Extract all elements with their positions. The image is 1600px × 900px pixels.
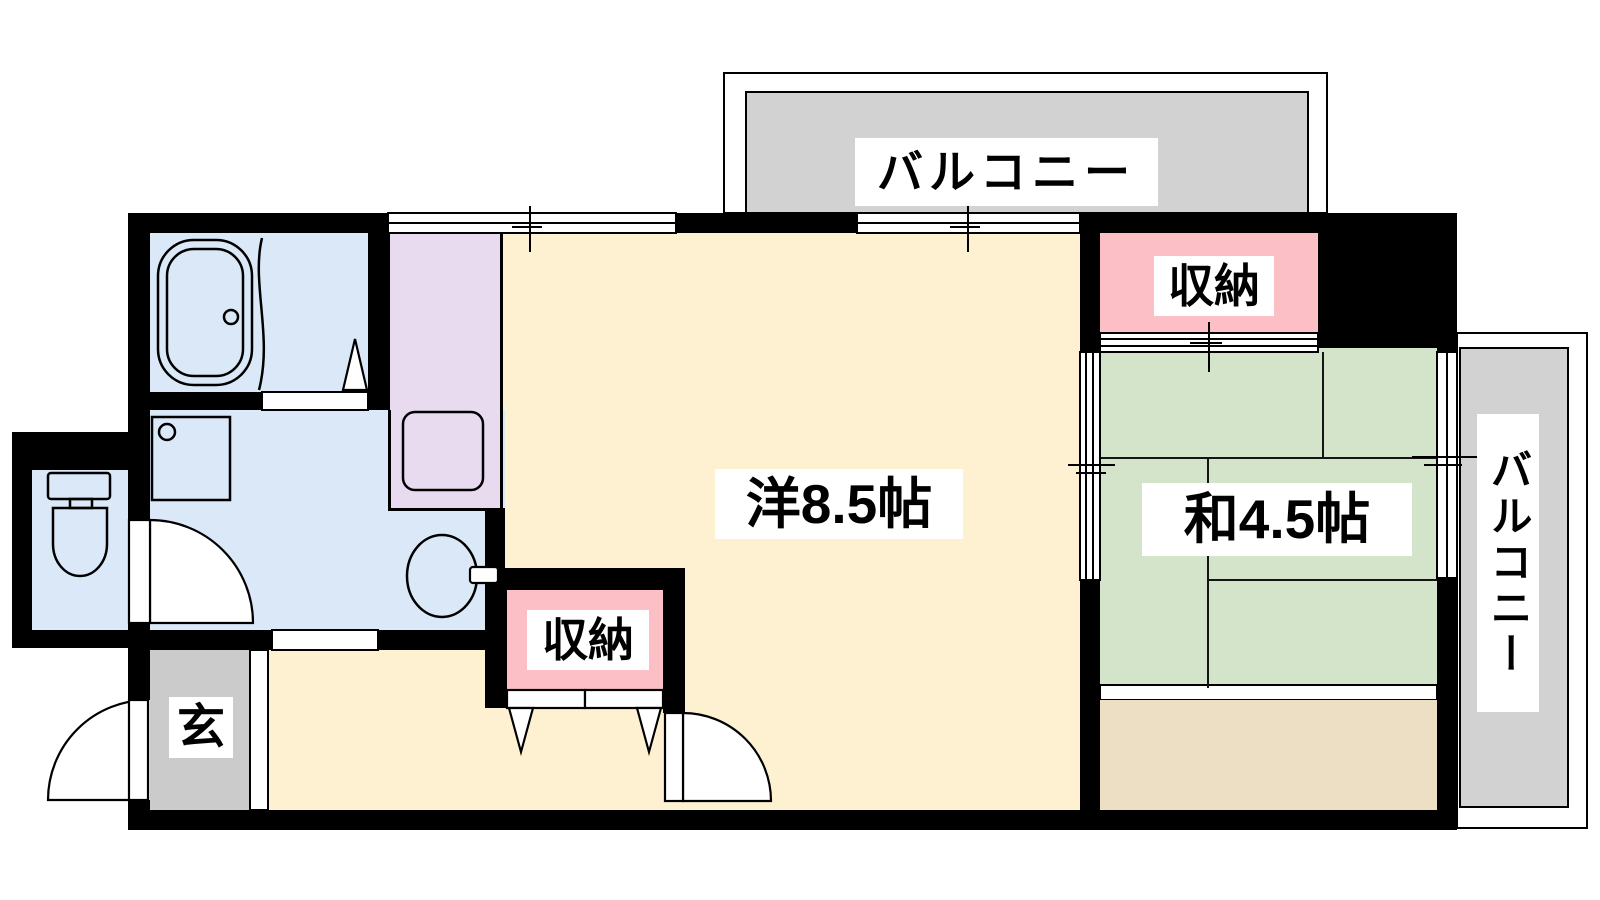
wall-closet-top [485,568,685,590]
closet-japanese-label: 収納 [1154,256,1274,316]
bathroom-door-opening [262,392,368,410]
balcony-top-label: バルコニー [855,138,1158,206]
wall-bottom [128,810,1457,830]
entrance-label: 玄 [169,697,233,758]
balcony-right-label: バルコニー [1477,414,1539,712]
western-room-label: 洋8.5帖 [715,469,963,539]
wall-corner-block-ne [1318,213,1457,348]
wall-bath-right [368,213,390,410]
wall-closet-right [663,590,685,713]
wall-top [128,213,1457,233]
wall-kitchen-right-line [500,233,503,510]
wall-closet-left [485,590,507,708]
wall-kitchen-left-line [388,410,391,510]
washroom-opening [272,630,378,650]
toilet-door-leaf [129,520,150,623]
wall-divider-top [1080,213,1100,352]
closet-main-bifold-left [507,690,585,708]
tatami-edge-strip [1100,685,1437,700]
wood-floor-strip [1100,700,1437,810]
wall-divider-bottom [1080,580,1100,830]
closet-main-bifold-right [585,690,663,708]
hall-door-leaf [665,713,683,801]
wall-left [128,213,150,700]
japanese-room-label: 和4.5帖 [1142,483,1412,556]
washbasin-tap [470,567,498,583]
closet-main-label: 収納 [527,610,649,670]
toilet-floor [32,470,130,630]
floor-plan-drawing [0,0,1600,900]
wall-kitchen-bottom-line [388,508,503,511]
entrance-door-leaf [129,700,148,800]
floor-plan: 洋8.5帖 和4.5帖 収納 収納 玄 バルコニー バルコニー [0,0,1600,900]
entrance-step [250,650,268,810]
